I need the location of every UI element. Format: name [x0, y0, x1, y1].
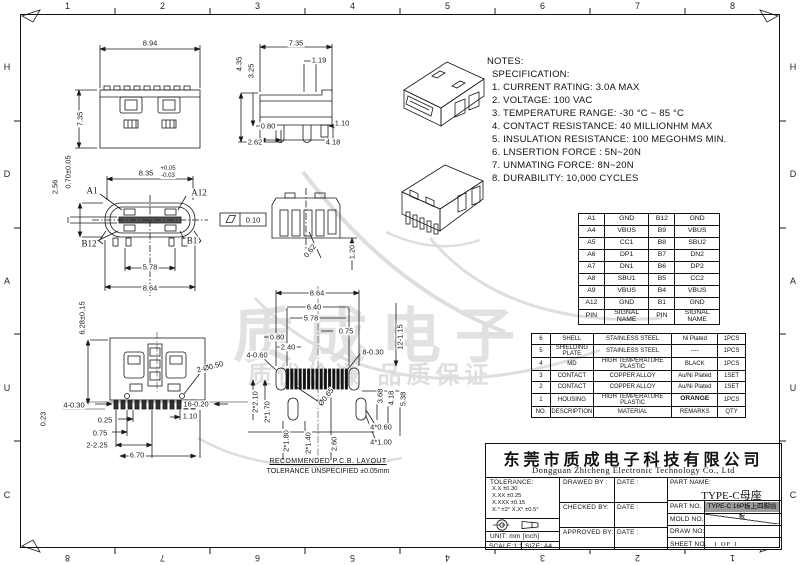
list-item: H	[786, 14, 800, 121]
list-item: 2	[590, 550, 685, 564]
zone-letters-left: HDAUC	[0, 14, 14, 548]
list-item: 7	[590, 0, 685, 14]
list-item: H	[0, 14, 14, 121]
list-item: 6	[495, 0, 590, 14]
list-item: 7	[115, 550, 210, 564]
list-item: 3	[495, 550, 590, 564]
list-item: U	[0, 334, 14, 441]
list-item: 4	[305, 0, 400, 14]
list-item: 5	[400, 0, 495, 14]
list-item: D	[786, 121, 800, 228]
list-item: 2	[115, 0, 210, 14]
list-item: 8	[20, 550, 115, 564]
list-item: 8	[685, 0, 780, 14]
list-item: 4	[400, 550, 495, 564]
list-item: C	[0, 441, 14, 548]
drawing-frame	[20, 14, 780, 548]
list-item: D	[0, 121, 14, 228]
list-item: 5	[305, 550, 400, 564]
zone-numbers-bottom: 87654321	[20, 550, 780, 564]
zone-letters-right: HDAUC	[786, 14, 800, 548]
list-item: 1	[685, 550, 780, 564]
list-item: C	[786, 441, 800, 548]
zone-numbers-top: 12345678	[20, 0, 780, 14]
list-item: A	[0, 228, 14, 335]
drawing-sheet: 质成电子 质优价谦 品质保证	[0, 0, 800, 565]
list-item: 6	[210, 550, 305, 564]
list-item: 1	[20, 0, 115, 14]
list-item: 3	[210, 0, 305, 14]
list-item: U	[786, 334, 800, 441]
list-item: A	[786, 228, 800, 335]
